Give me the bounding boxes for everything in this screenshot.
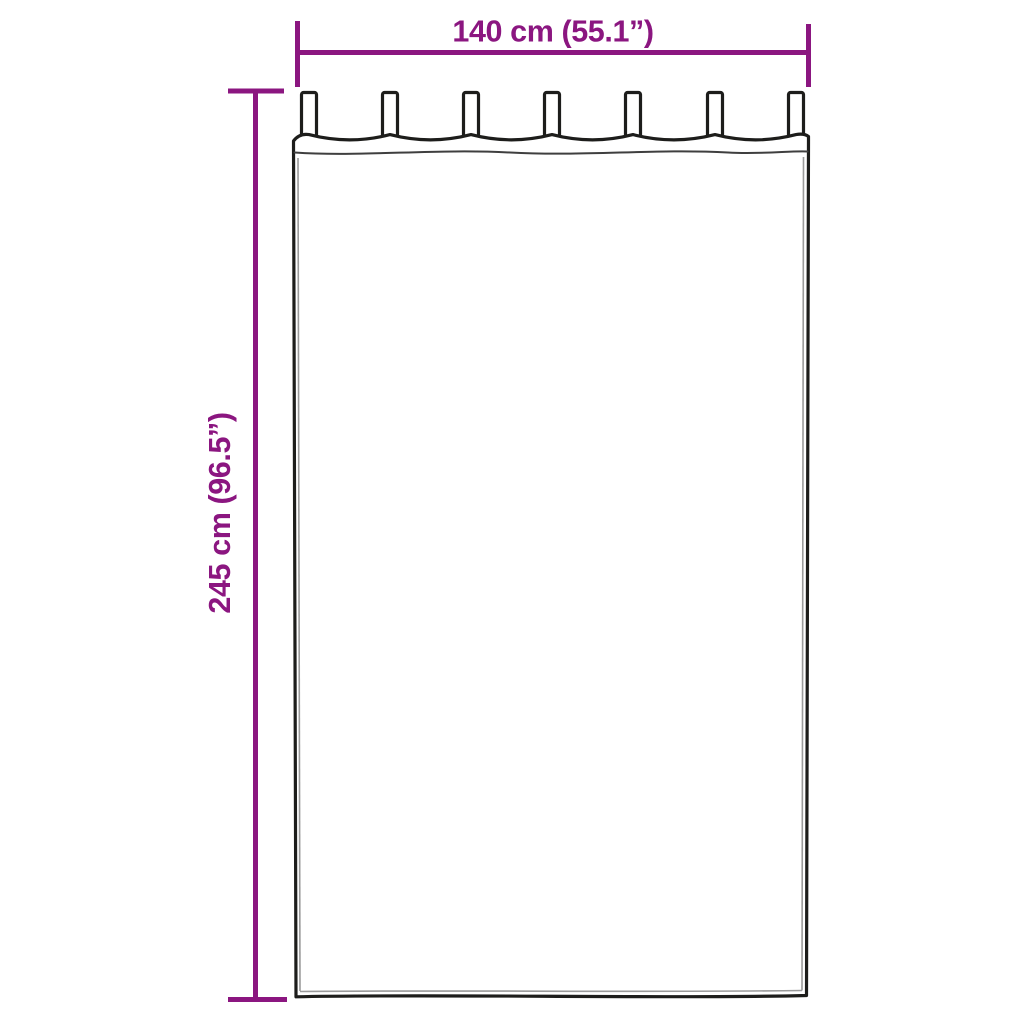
curtain-hem-line-bottom (300, 991, 802, 992)
curtain-illustration (294, 93, 809, 997)
product-dimension-diagram: 140 cm (55.1”) 245 cm (96.5”) (0, 0, 1024, 1024)
width-dimension: 140 cm (55.1”) (298, 15, 809, 88)
height-dimension: 245 cm (96.5”) (203, 91, 287, 1000)
curtain-panel (294, 134, 809, 997)
height-dimension-label: 245 cm (96.5”) (203, 412, 237, 613)
width-dimension-label: 140 cm (55.1”) (452, 15, 653, 49)
